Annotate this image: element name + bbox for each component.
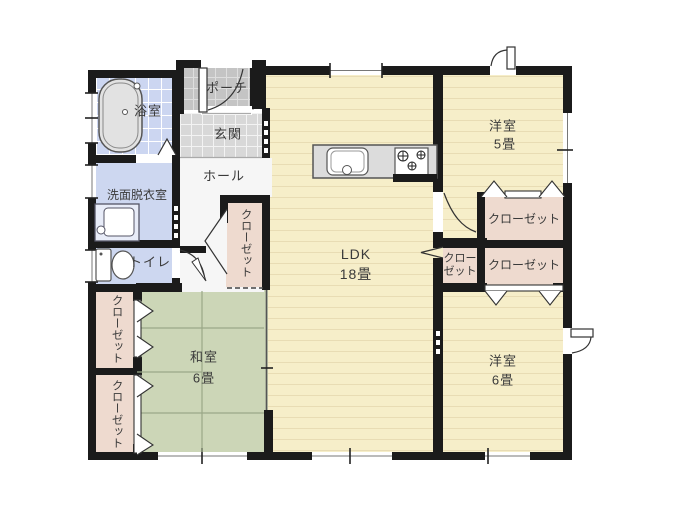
label-japanese-room: 和室 (190, 351, 218, 366)
floor-hall-opening (262, 158, 272, 197)
wall (88, 70, 184, 78)
wall (172, 158, 180, 250)
window-gap (158, 452, 247, 460)
wall (220, 195, 228, 223)
wall (136, 283, 182, 292)
step-gap (201, 106, 252, 115)
label-ldk: LDK (341, 246, 371, 262)
label-hall-closet: クローゼット (238, 209, 251, 278)
window-gap (563, 113, 572, 183)
label-west-closet-lower: クローゼット (109, 380, 122, 449)
wall (133, 444, 142, 454)
window-gap (330, 66, 382, 75)
window-gap (312, 452, 392, 460)
label-bathroom: 浴室 (134, 105, 162, 120)
wall (172, 76, 180, 158)
label-japanese-room-size: 6畳 (193, 372, 215, 387)
label-closet-small: クローゼット (439, 252, 481, 277)
label-western-room5-size: 5畳 (494, 138, 516, 153)
label-ldk-size: 18畳 (340, 266, 373, 282)
label-western-room6: 洋室 (489, 355, 517, 370)
wall (433, 66, 443, 192)
door-gap (563, 328, 572, 354)
label-west-closet-upper: クローゼット (109, 295, 122, 364)
window-gap (88, 165, 96, 198)
label-toilet: トイレ (129, 256, 171, 271)
label-closet-room5: クローゼット (488, 213, 560, 227)
wall (133, 289, 142, 301)
wall (178, 246, 206, 253)
door-gap (433, 192, 443, 232)
wall (477, 240, 565, 248)
wall (433, 292, 443, 456)
window-gap (88, 93, 96, 143)
wall (264, 410, 273, 456)
label-porch: ポーチ (206, 82, 248, 97)
door-gap (172, 248, 180, 278)
window-gap (485, 452, 530, 460)
label-western-room5: 洋室 (489, 120, 517, 135)
label-entrance: 玄関 (214, 128, 242, 143)
wall (262, 195, 270, 290)
door-gap (201, 60, 252, 68)
door-gap (136, 155, 172, 163)
wall (553, 283, 565, 292)
wall (88, 155, 136, 163)
label-hall: ホール (203, 170, 245, 185)
wall (95, 368, 137, 375)
wall (262, 108, 270, 158)
label-western-room6-size: 6畳 (492, 374, 514, 389)
wall (133, 357, 142, 375)
wall (88, 284, 138, 292)
wall (264, 66, 572, 75)
door-gap (490, 66, 516, 75)
window-gap (88, 250, 96, 282)
room6-exterior-door (571, 329, 593, 353)
floor-plan: ポーチ 玄関 ホール 浴室 洗面脱衣室 トイレ 和室 6畳 LDK 18畳 洋室… (0, 0, 680, 510)
label-closet-room6: クローゼット (488, 259, 560, 273)
label-washroom: 洗面脱衣室 (107, 189, 167, 203)
wall (88, 240, 174, 248)
